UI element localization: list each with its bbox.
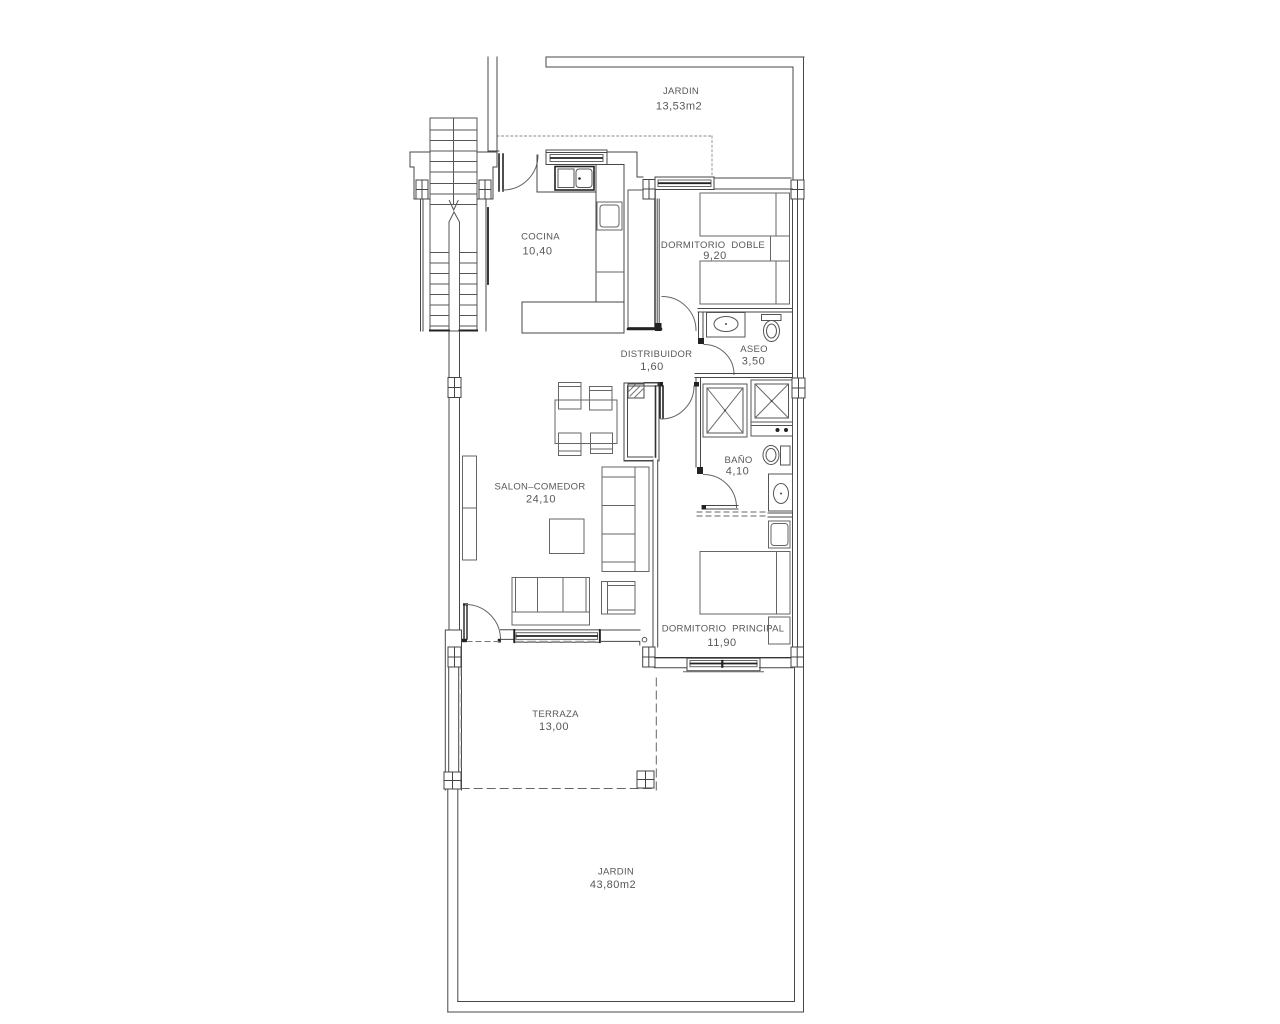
- svg-text:4,10: 4,10: [726, 465, 749, 477]
- svg-text:ASEO: ASEO: [740, 344, 768, 355]
- svg-text:13,00: 13,00: [539, 721, 569, 733]
- svg-text:43,80m2: 43,80m2: [590, 879, 636, 891]
- svg-text:9,20: 9,20: [703, 250, 726, 262]
- svg-text:13,53m2: 13,53m2: [656, 100, 702, 112]
- svg-text:TERRAZA: TERRAZA: [532, 709, 579, 720]
- svg-text:JARDIN: JARDIN: [663, 86, 699, 97]
- svg-text:BAÑO: BAÑO: [724, 455, 752, 466]
- svg-text:24,10: 24,10: [526, 493, 556, 505]
- svg-text:SALON–COMEDOR: SALON–COMEDOR: [494, 481, 585, 492]
- svg-text:1,60: 1,60: [640, 361, 663, 373]
- svg-text:DORMITORIO PRINCIPAL: DORMITORIO PRINCIPAL: [662, 623, 785, 634]
- svg-text:11,90: 11,90: [707, 637, 736, 649]
- svg-text:10,40: 10,40: [522, 245, 552, 257]
- svg-text:DISTRIBUIDOR: DISTRIBUIDOR: [621, 349, 693, 360]
- svg-text:COCINA: COCINA: [521, 231, 560, 242]
- svg-text:JARDIN: JARDIN: [598, 866, 634, 877]
- svg-text:3,50: 3,50: [742, 355, 765, 367]
